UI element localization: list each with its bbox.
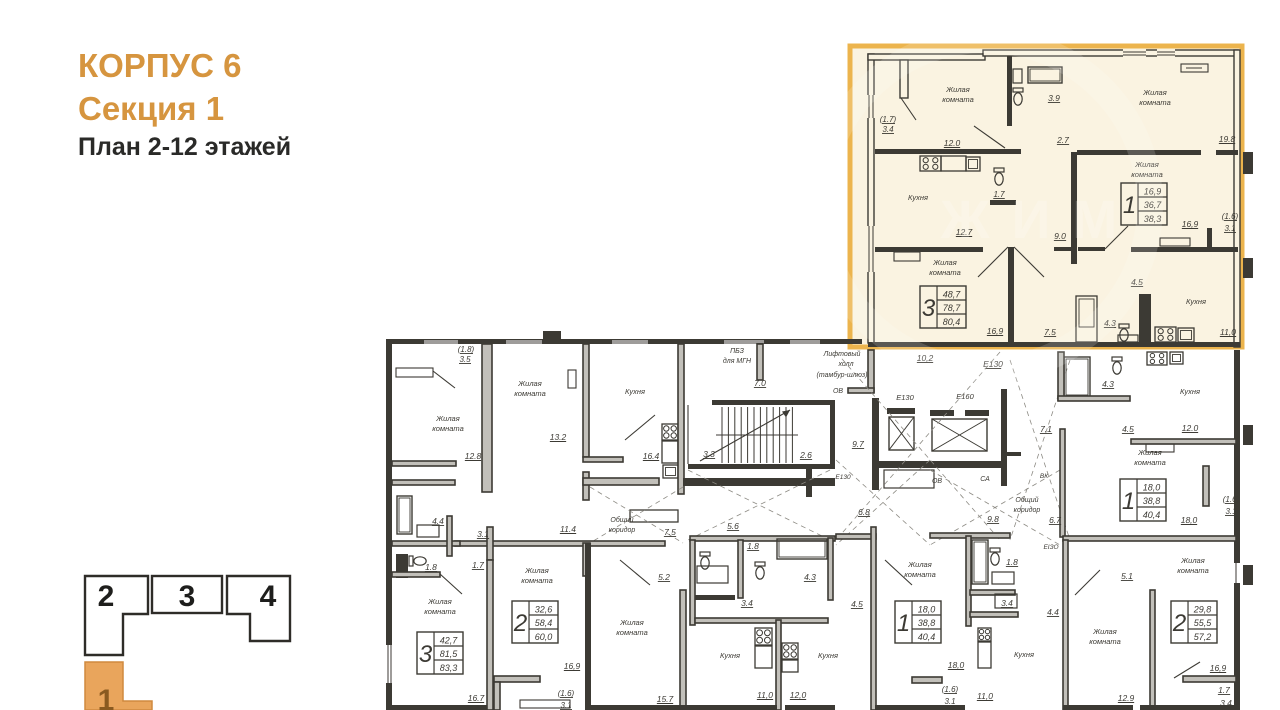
svg-text:Общий: Общий — [1015, 496, 1038, 504]
svg-text:1.8: 1.8 — [425, 562, 437, 572]
svg-text:4.5: 4.5 — [851, 599, 863, 609]
svg-text:4.5: 4.5 — [1122, 424, 1134, 434]
svg-text:Кухня: Кухня — [1186, 297, 1206, 306]
svg-text:Общий: Общий — [610, 516, 633, 524]
svg-text:Жилая: Жилая — [907, 560, 931, 569]
svg-text:коридор: коридор — [1014, 506, 1041, 514]
svg-text:коридор: коридор — [609, 526, 636, 534]
svg-text:Жилая: Жилая — [619, 618, 643, 627]
svg-text:Жилая: Жилая — [435, 414, 459, 423]
svg-text:Жилая: Жилая — [1137, 448, 1161, 457]
svg-text:Жилая: Жилая — [932, 258, 956, 267]
svg-text:16,9: 16,9 — [1210, 663, 1227, 673]
svg-text:комната: комната — [432, 424, 464, 433]
svg-text:40,4: 40,4 — [918, 632, 936, 642]
svg-text:18,0: 18,0 — [1181, 515, 1198, 525]
svg-text:(1.6): (1.6) — [1223, 495, 1240, 504]
svg-text:18,0: 18,0 — [948, 660, 965, 670]
svg-text:60,0: 60,0 — [535, 632, 553, 642]
svg-text:1: 1 — [1122, 488, 1135, 515]
svg-text:(1.6): (1.6) — [558, 689, 575, 698]
svg-text:5.6: 5.6 — [727, 521, 739, 531]
svg-text:1.7: 1.7 — [1218, 685, 1230, 695]
svg-text:комната: комната — [904, 570, 936, 579]
svg-text:комната: комната — [1134, 458, 1166, 467]
svg-text:Е130: Е130 — [835, 474, 851, 481]
svg-text:комната: комната — [929, 268, 961, 277]
svg-text:Кухня: Кухня — [720, 651, 740, 660]
svg-text:16,9: 16,9 — [1182, 219, 1199, 229]
svg-text:(1.6): (1.6) — [1222, 212, 1239, 221]
svg-text:4.4: 4.4 — [1047, 607, 1059, 617]
svg-text:(тамбур-шлюз): (тамбур-шлюз) — [817, 371, 868, 379]
svg-text:16.7: 16.7 — [468, 693, 485, 703]
svg-text:Жилая: Жилая — [524, 566, 548, 575]
svg-text:4.3: 4.3 — [804, 572, 816, 582]
svg-text:16.4: 16.4 — [643, 451, 660, 461]
svg-text:5.2: 5.2 — [658, 572, 670, 582]
svg-text:3.1: 3.1 — [1224, 224, 1235, 233]
svg-text:6.8: 6.8 — [858, 507, 870, 517]
svg-text:ОВ: ОВ — [932, 478, 942, 485]
svg-text:1: 1 — [98, 684, 115, 710]
svg-text:для МГН: для МГН — [723, 357, 752, 365]
svg-text:58,4: 58,4 — [535, 618, 553, 628]
svg-text:ПБЗ: ПБЗ — [730, 348, 744, 355]
svg-text:11,0: 11,0 — [757, 690, 773, 700]
svg-text:Кухня: Кухня — [818, 651, 838, 660]
svg-text:3.5: 3.5 — [459, 355, 471, 364]
svg-text:4.3: 4.3 — [1102, 379, 1114, 389]
svg-text:Кухня: Кухня — [1180, 387, 1200, 396]
svg-text:4.4: 4.4 — [432, 516, 444, 526]
svg-text:6.7: 6.7 — [1049, 515, 1061, 525]
svg-text:1.7: 1.7 — [472, 560, 484, 570]
svg-text:Жилая: Жилая — [1180, 556, 1204, 565]
svg-text:9.8: 9.8 — [987, 514, 999, 524]
svg-text:9.7: 9.7 — [852, 439, 864, 449]
svg-text:ОВ: ОВ — [833, 388, 843, 395]
svg-text:(1.7): (1.7) — [880, 115, 897, 124]
svg-text:КОРПУС 6: КОРПУС 6 — [78, 47, 241, 84]
svg-text:1: 1 — [897, 610, 910, 637]
svg-text:Жилая: Жилая — [1142, 88, 1166, 97]
svg-text:40,4: 40,4 — [1143, 510, 1161, 520]
svg-text:комната: комната — [1139, 98, 1171, 107]
svg-text:Секция 1: Секция 1 — [78, 90, 224, 127]
svg-text:2: 2 — [98, 580, 115, 613]
svg-text:38,8: 38,8 — [918, 618, 936, 628]
svg-text:Е130: Е130 — [896, 393, 914, 402]
svg-text:42,7: 42,7 — [440, 635, 459, 645]
svg-text:ЕІЗО: ЕІЗО — [1043, 544, 1058, 551]
svg-text:3: 3 — [922, 295, 936, 322]
svg-text:18,0: 18,0 — [918, 604, 936, 614]
svg-text:7.5: 7.5 — [664, 527, 676, 537]
svg-text:План 2-12 этажей: План 2-12 этажей — [78, 133, 291, 161]
svg-text:2: 2 — [1172, 610, 1186, 637]
svg-text:3.9: 3.9 — [1048, 93, 1060, 103]
svg-text:комната: комната — [424, 607, 456, 616]
svg-text:11,0: 11,0 — [977, 691, 993, 701]
svg-text:Лифтовый: Лифтовый — [823, 350, 861, 358]
svg-text:11,0: 11,0 — [1220, 327, 1236, 337]
svg-text:2.6: 2.6 — [799, 450, 812, 460]
svg-text:16,9: 16,9 — [987, 326, 1004, 336]
svg-text:СА: СА — [980, 476, 990, 483]
svg-text:83,3: 83,3 — [440, 663, 458, 673]
svg-text:3.1: 3.1 — [944, 697, 955, 706]
svg-text:3.3: 3.3 — [703, 449, 715, 459]
svg-text:ВК: ВК — [1040, 473, 1049, 480]
svg-text:4: 4 — [260, 580, 277, 613]
svg-text:(1.8): (1.8) — [458, 345, 475, 354]
svg-text:12,0: 12,0 — [790, 690, 807, 700]
svg-text:5.1: 5.1 — [1121, 571, 1133, 581]
svg-text:Кухня: Кухня — [1014, 650, 1034, 659]
svg-text:57,2: 57,2 — [1194, 632, 1212, 642]
svg-text:19.8: 19.8 — [1219, 134, 1236, 144]
svg-text:32,6: 32,6 — [535, 604, 553, 614]
svg-text:(1.6): (1.6) — [942, 685, 959, 694]
svg-text:15.7: 15.7 — [657, 694, 674, 704]
svg-text:3.1: 3.1 — [477, 529, 489, 539]
svg-text:холл: холл — [837, 361, 853, 368]
svg-text:81,5: 81,5 — [440, 649, 459, 659]
svg-text:комната: комната — [616, 628, 648, 637]
svg-text:Жилая: Жилая — [945, 85, 969, 94]
svg-text:Жилая: Жилая — [1092, 627, 1116, 636]
svg-text:18,0: 18,0 — [1143, 482, 1161, 492]
svg-text:Жилая: Жилая — [427, 597, 451, 606]
svg-text:78,7: 78,7 — [943, 303, 962, 313]
svg-text:7.5: 7.5 — [1044, 327, 1056, 337]
svg-text:комната: комната — [521, 576, 553, 585]
svg-text:11.4: 11.4 — [560, 524, 576, 534]
svg-text:1.8: 1.8 — [1006, 557, 1018, 567]
svg-text:55,5: 55,5 — [1194, 618, 1213, 628]
svg-text:3: 3 — [419, 641, 433, 668]
svg-text:2.7: 2.7 — [1056, 135, 1069, 145]
svg-text:комната: комната — [942, 95, 974, 104]
svg-text:13.2: 13.2 — [550, 432, 567, 442]
svg-text:12.8: 12.8 — [465, 451, 482, 461]
svg-text:12.9: 12.9 — [1118, 693, 1135, 703]
svg-text:38,8: 38,8 — [1143, 496, 1161, 506]
svg-text:3: 3 — [179, 580, 196, 613]
svg-text:2: 2 — [513, 610, 527, 637]
svg-text:3.4: 3.4 — [741, 598, 753, 608]
svg-text:7.1: 7.1 — [1040, 424, 1052, 434]
svg-text:7.0: 7.0 — [754, 378, 766, 388]
svg-text:Кухня: Кухня — [625, 387, 645, 396]
svg-text:3.4: 3.4 — [882, 125, 894, 134]
svg-text:3.1: 3.1 — [1225, 507, 1236, 516]
svg-text:комната: комната — [514, 389, 546, 398]
svg-text:Жилая: Жилая — [517, 379, 541, 388]
svg-text:3.4: 3.4 — [1001, 598, 1013, 608]
svg-text:ЖИМ: ЖИМ — [940, 190, 1140, 250]
svg-text:29,8: 29,8 — [1193, 604, 1212, 614]
svg-text:комната: комната — [1177, 566, 1209, 575]
svg-text:Кухня: Кухня — [908, 193, 928, 202]
svg-text:48,7: 48,7 — [943, 289, 962, 299]
svg-text:Е160: Е160 — [956, 392, 974, 401]
svg-text:12.0: 12.0 — [944, 138, 961, 148]
svg-text:1.8: 1.8 — [747, 541, 759, 551]
svg-text:комната: комната — [1089, 637, 1121, 646]
svg-text:12.0: 12.0 — [1182, 423, 1199, 433]
svg-text:80,4: 80,4 — [943, 317, 961, 327]
svg-text:16,9: 16,9 — [564, 661, 581, 671]
